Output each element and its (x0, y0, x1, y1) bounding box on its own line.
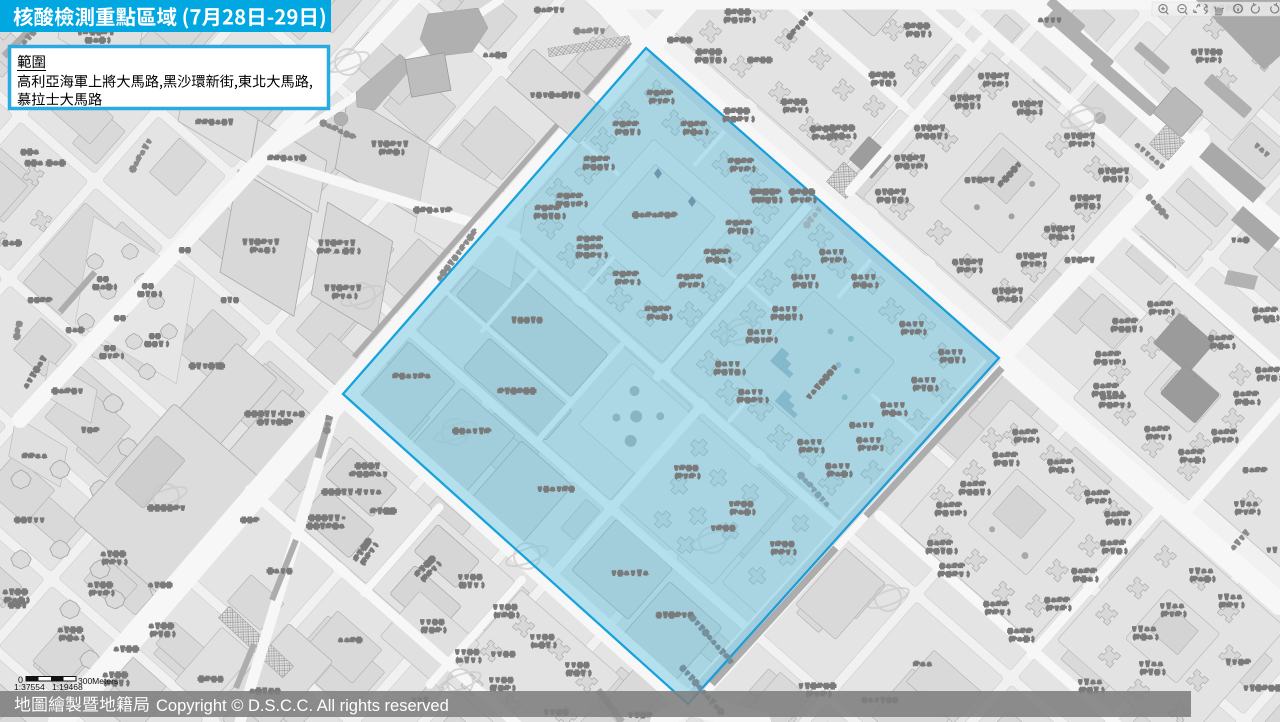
svg-text:1:19468: 1:19468 (52, 682, 83, 692)
svg-text:300Meters: 300Meters (78, 676, 118, 686)
svg-text:Copyright © D.S.C.C. All right: Copyright © D.S.C.C. All rights reserved (156, 697, 449, 715)
svg-text:1:37554: 1:37554 (14, 682, 45, 692)
